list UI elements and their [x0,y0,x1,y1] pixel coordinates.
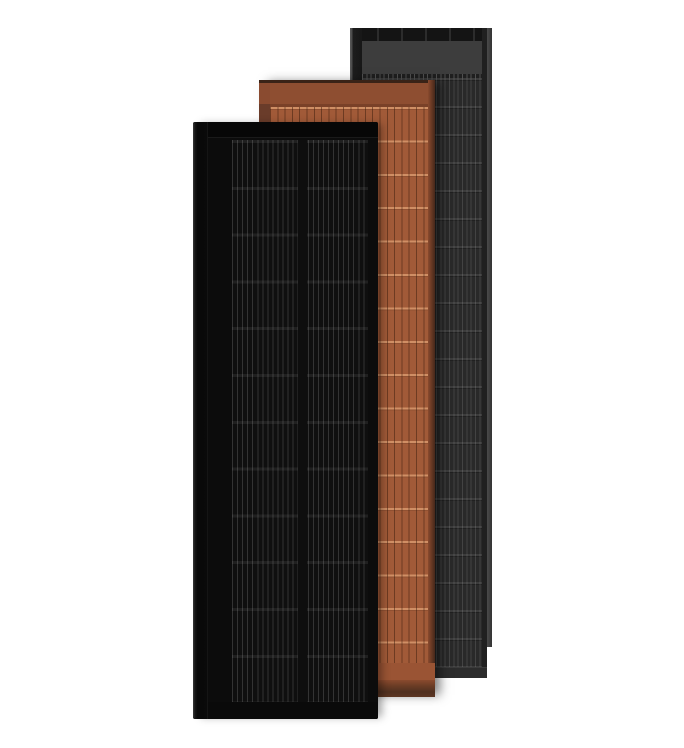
black-panel-bottom-frame [208,702,378,719]
gray-panel-header-band [362,41,492,74]
product-render-stage [0,0,684,748]
gray-panel-right-edge [487,28,492,647]
terracotta-panel-right-shadow-edge [428,80,435,663]
black-panel-left-edge [193,122,208,719]
black-panel-top-frame [208,122,378,138]
gray-panel-top-frame [353,28,492,41]
black-panel-column-gap [298,140,307,702]
terracotta-panel-header-band [270,83,435,104]
black-panel-cell-grid [232,140,368,702]
black-solar-panel [193,122,378,719]
